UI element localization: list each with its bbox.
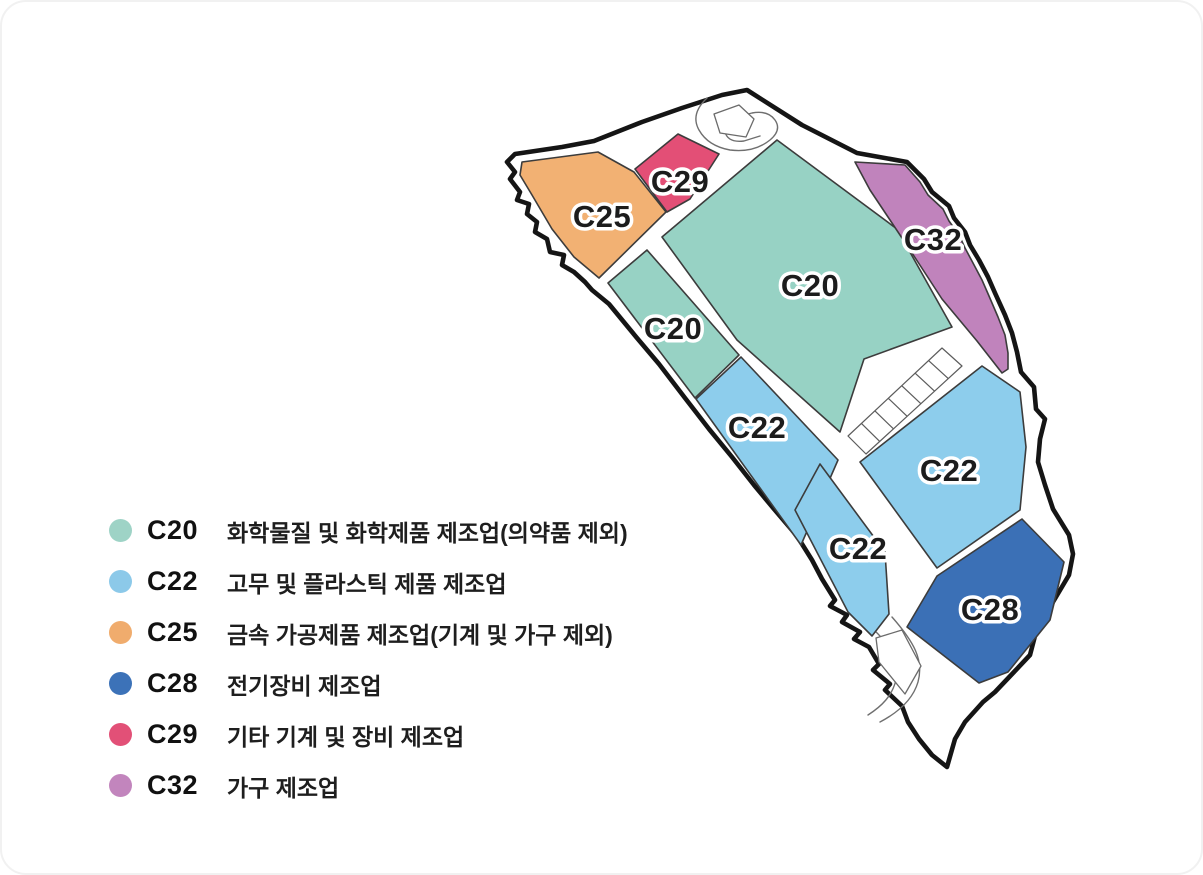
legend-item-C25: C25금속 가공제품 제조업(기계 및 가구 제외) [109,607,628,658]
parcel-label-c32: C32 [904,222,962,257]
parcel-label-c28: C28 [961,592,1019,627]
parcel-label-c25: C25 [573,199,631,234]
legend-description: 금속 가공제품 제조업(기계 및 가구 제외) [227,616,613,650]
legend-code: C29 [147,719,213,750]
legend-description: 화학물질 및 화학제품 제조업(의약품 제외) [227,514,628,548]
legend-code: C28 [147,668,213,699]
legend-color-dot [109,723,132,746]
legend-description: 전기장비 제조업 [227,667,382,701]
legend-item-C20: C20화학물질 및 화학제품 제조업(의약품 제외) [109,505,628,556]
parcel-label-c20-large: C20 [781,268,839,303]
parcel-label-c29: C29 [651,164,709,199]
legend-item-C22: C22고무 및 플라스틱 제품 제조업 [109,556,628,607]
parcel-label-c22-mid: C22 [829,531,887,566]
legend-description: 가구 제조업 [227,769,339,803]
parcel-label-c22-upper: C22 [728,410,786,445]
legend-item-C28: C28전기장비 제조업 [109,658,628,709]
legend-color-dot [109,570,132,593]
legend-color-dot [109,621,132,644]
legend-color-dot [109,672,132,695]
legend-description: 기타 기계 및 장비 제조업 [227,718,464,752]
parcel-label-c20-small: C20 [644,311,702,346]
legend-item-C32: C32가구 제조업 [109,760,628,811]
parcel-label-c22-large: C22 [920,453,978,488]
legend-color-dot [109,774,132,797]
legend-code: C20 [147,515,213,546]
legend-description: 고무 및 플라스틱 제품 제조업 [227,565,506,599]
legend: C20화학물질 및 화학제품 제조업(의약품 제외)C22고무 및 플라스틱 제… [109,505,628,811]
legend-color-dot [109,519,132,542]
legend-code: C25 [147,617,213,648]
legend-code: C22 [147,566,213,597]
figure-card: C25C29C20C20C32C22C22C22C28 C20화학물질 및 화학… [0,0,1203,875]
legend-code: C32 [147,770,213,801]
legend-item-C29: C29기타 기계 및 장비 제조업 [109,709,628,760]
